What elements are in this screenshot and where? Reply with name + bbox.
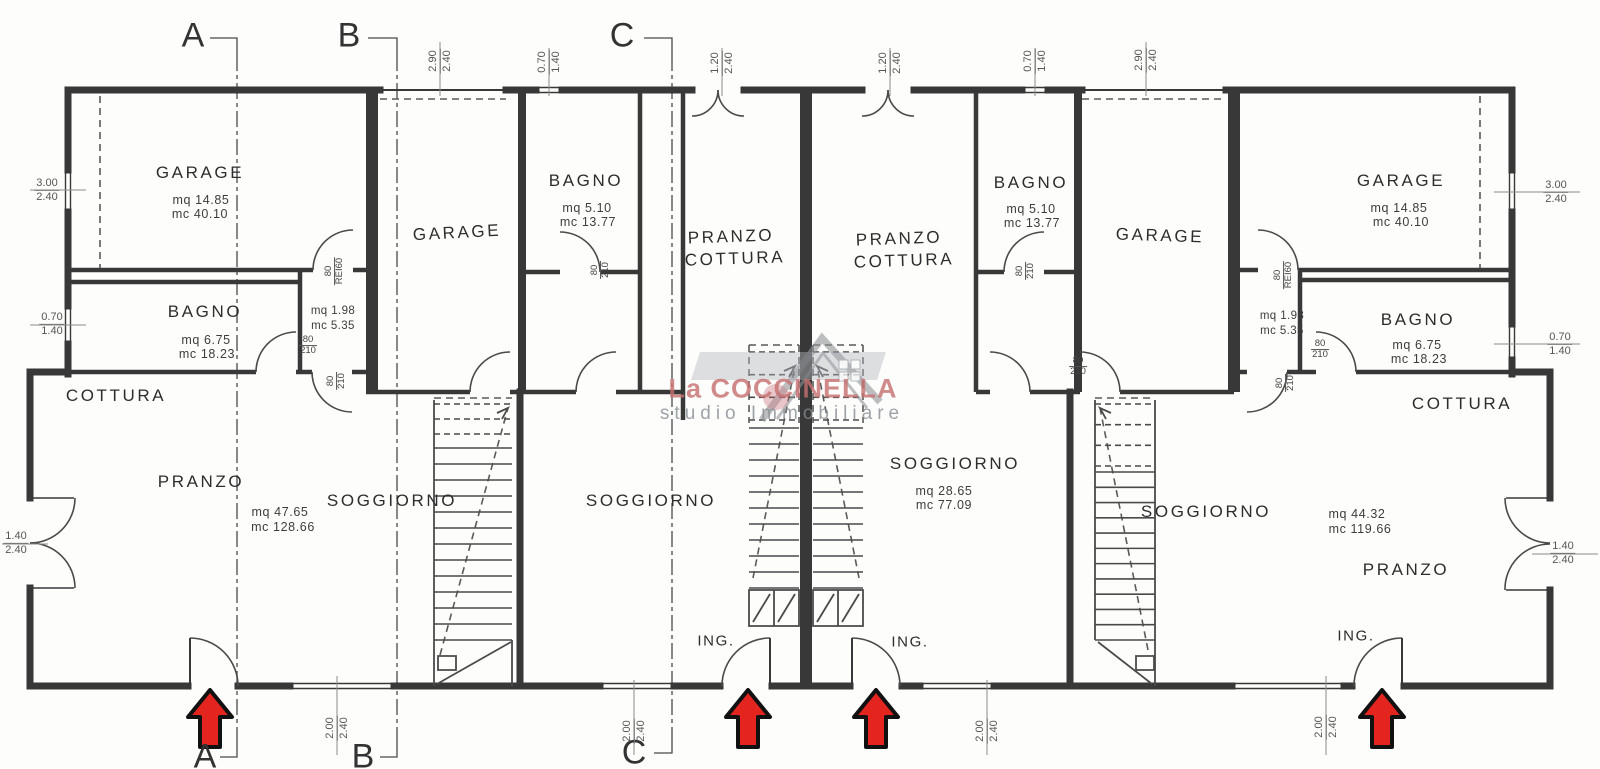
dim-bottom-3: 2.002.40 (1313, 714, 1339, 739)
room-label-cottura-1: COTTURA (66, 386, 166, 406)
dim-left-0: 3.002.40 (34, 177, 59, 203)
room-label-bagno-3: BAGNO (994, 173, 1068, 193)
dim-right-1: 0.701.40 (1547, 331, 1572, 357)
room-volume-bagno-4: mc 18.23 (1391, 352, 1447, 366)
room-label-soggiorno-3: SOGGIORNO (890, 454, 1020, 474)
room-volume-garage-1: mc 40.10 (172, 207, 228, 221)
entrance-arrow-unit2 (726, 690, 770, 747)
entrance-label-unit4: ING. (1337, 628, 1374, 645)
room-label-pranzo-cottura-2-line1: PRANZO (687, 225, 774, 248)
room-area-garage-4: mq 14.85 (1371, 201, 1428, 215)
room-label-soggiorno-2: SOGGIORNO (586, 491, 716, 511)
dim-bottom-0: 2.002.40 (324, 715, 350, 740)
door-tag-fire-2: 80REI60 (1273, 261, 1295, 289)
stairs-4-rungs (1095, 472, 1155, 640)
room-volume-soggiorno-3: mc 77.09 (916, 498, 972, 512)
room-area-soggiorno-3: mq 28.65 (916, 484, 973, 498)
dim-bottom-1: 2.002.40 (621, 718, 647, 743)
room-volume-bagno-2: mc 13.77 (560, 215, 616, 229)
room-label-soggiorno-1: SOGGIORNO (327, 491, 457, 511)
door-tag-4: 80210 (1015, 262, 1037, 280)
watermark-brand: La COCCINELLA (669, 374, 898, 405)
entrance-door-leaves (190, 638, 1402, 686)
room-label-pranzo-cottura-3-line1: PRANZO (855, 227, 942, 250)
dim-right-0: 3.002.40 (1543, 179, 1568, 205)
door-tag-7: 80210 (1275, 374, 1297, 392)
door-tag-3: 80210 (590, 261, 612, 279)
section-lines (237, 55, 672, 740)
stairs-1-rungs-dashed (434, 404, 512, 434)
room-area-wc-1: mq 1.98 (311, 305, 355, 317)
door-tag-fire-1: 80REI60 (324, 257, 346, 285)
room-label-pranzo-cottura-3-line2: COTTURA (853, 249, 954, 272)
watermark-tagline: studio Immobiliare (660, 403, 904, 425)
dim-top-5: 2.902.40 (1133, 47, 1159, 72)
door-tag-1: 80210 (299, 335, 317, 357)
room-label-bagno-2: BAGNO (549, 171, 623, 191)
dim-top-0: 2.902.40 (427, 48, 453, 73)
dim-bottom-2: 2.002.40 (974, 718, 1000, 743)
room-area-bagno-3: mq 5.10 (1006, 202, 1055, 216)
dim-top-2: 1.202.40 (709, 50, 735, 75)
stairs-1-rungs (434, 448, 512, 640)
room-label-pranzo-cottura-2-line2: COTTURA (684, 247, 785, 270)
room-label-pranzo-1: PRANZO (158, 472, 244, 492)
entrance-label-unit2: ING. (697, 633, 734, 650)
room-area-bagno-4: mq 6.75 (1392, 338, 1441, 352)
section-letter-a-bottom: A (194, 738, 217, 769)
room-volume-bagno-1: mc 18.23 (179, 347, 235, 361)
room-volume-wc-1: mc 5.35 (311, 320, 355, 332)
room-label-garage-1: GARAGE (156, 163, 244, 183)
floorplan-page: A B C A B C GARAGE mq 14.85 mc 40.10 BAG… (0, 0, 1600, 769)
room-label-pranzo-4: PRANZO (1363, 560, 1449, 580)
room-area-soggiorno-1: mq 47.65 (252, 505, 309, 519)
room-volume-garage-4: mc 40.10 (1373, 215, 1429, 229)
section-letter-b-top: B (338, 17, 361, 56)
entrance-label-unit3: ING. (891, 634, 928, 651)
room-volume-soggiorno-1: mc 128.66 (251, 520, 315, 534)
room-volume-wc-4: mc 5.35 (1260, 325, 1304, 337)
dim-left-2: 1.402.40 (3, 530, 28, 556)
entrance-arrow-unit3 (854, 690, 898, 747)
door-tag-6: 80210 (1311, 339, 1329, 361)
door-tag-5: 80210 (1069, 356, 1087, 378)
room-label-bagno-1: BAGNO (168, 302, 242, 322)
entrance-arrow-unit4 (1360, 690, 1404, 747)
room-label-soggiorno-4: SOGGIORNO (1141, 502, 1271, 522)
room-label-garage-4: GARAGE (1357, 171, 1445, 191)
room-volume-soggiorno-4: mc 119.66 (1329, 522, 1392, 536)
room-area-garage-1: mq 14.85 (173, 193, 230, 207)
stairs-4-rungs-dashed (1095, 404, 1155, 466)
room-area-wc-4: mq 1.98 (1260, 310, 1304, 322)
room-label-bagno-4: BAGNO (1381, 310, 1455, 330)
room-area-soggiorno-4: mq 44.32 (1329, 507, 1386, 521)
room-volume-bagno-3: mc 13.77 (1004, 216, 1060, 230)
dim-top-3: 1.202.40 (877, 50, 903, 75)
section-letter-a-top: A (182, 17, 205, 56)
room-area-bagno-1: mq 6.75 (181, 333, 230, 347)
room-label-garage-3: GARAGE (1116, 224, 1205, 247)
room-label-cottura-4: COTTURA (1412, 394, 1512, 414)
dim-top-4: 0.701.40 (1022, 48, 1048, 73)
dim-left-1: 0.701.40 (39, 311, 64, 337)
door-tag-2: 80210 (326, 372, 348, 390)
section-letter-b-bottom: B (352, 738, 375, 769)
dim-top-1: 0.701.40 (536, 49, 562, 74)
dim-right-2: 1.402.40 (1550, 540, 1575, 566)
room-area-bagno-2: mq 5.10 (562, 201, 611, 215)
section-letter-c-top: C (610, 17, 635, 56)
